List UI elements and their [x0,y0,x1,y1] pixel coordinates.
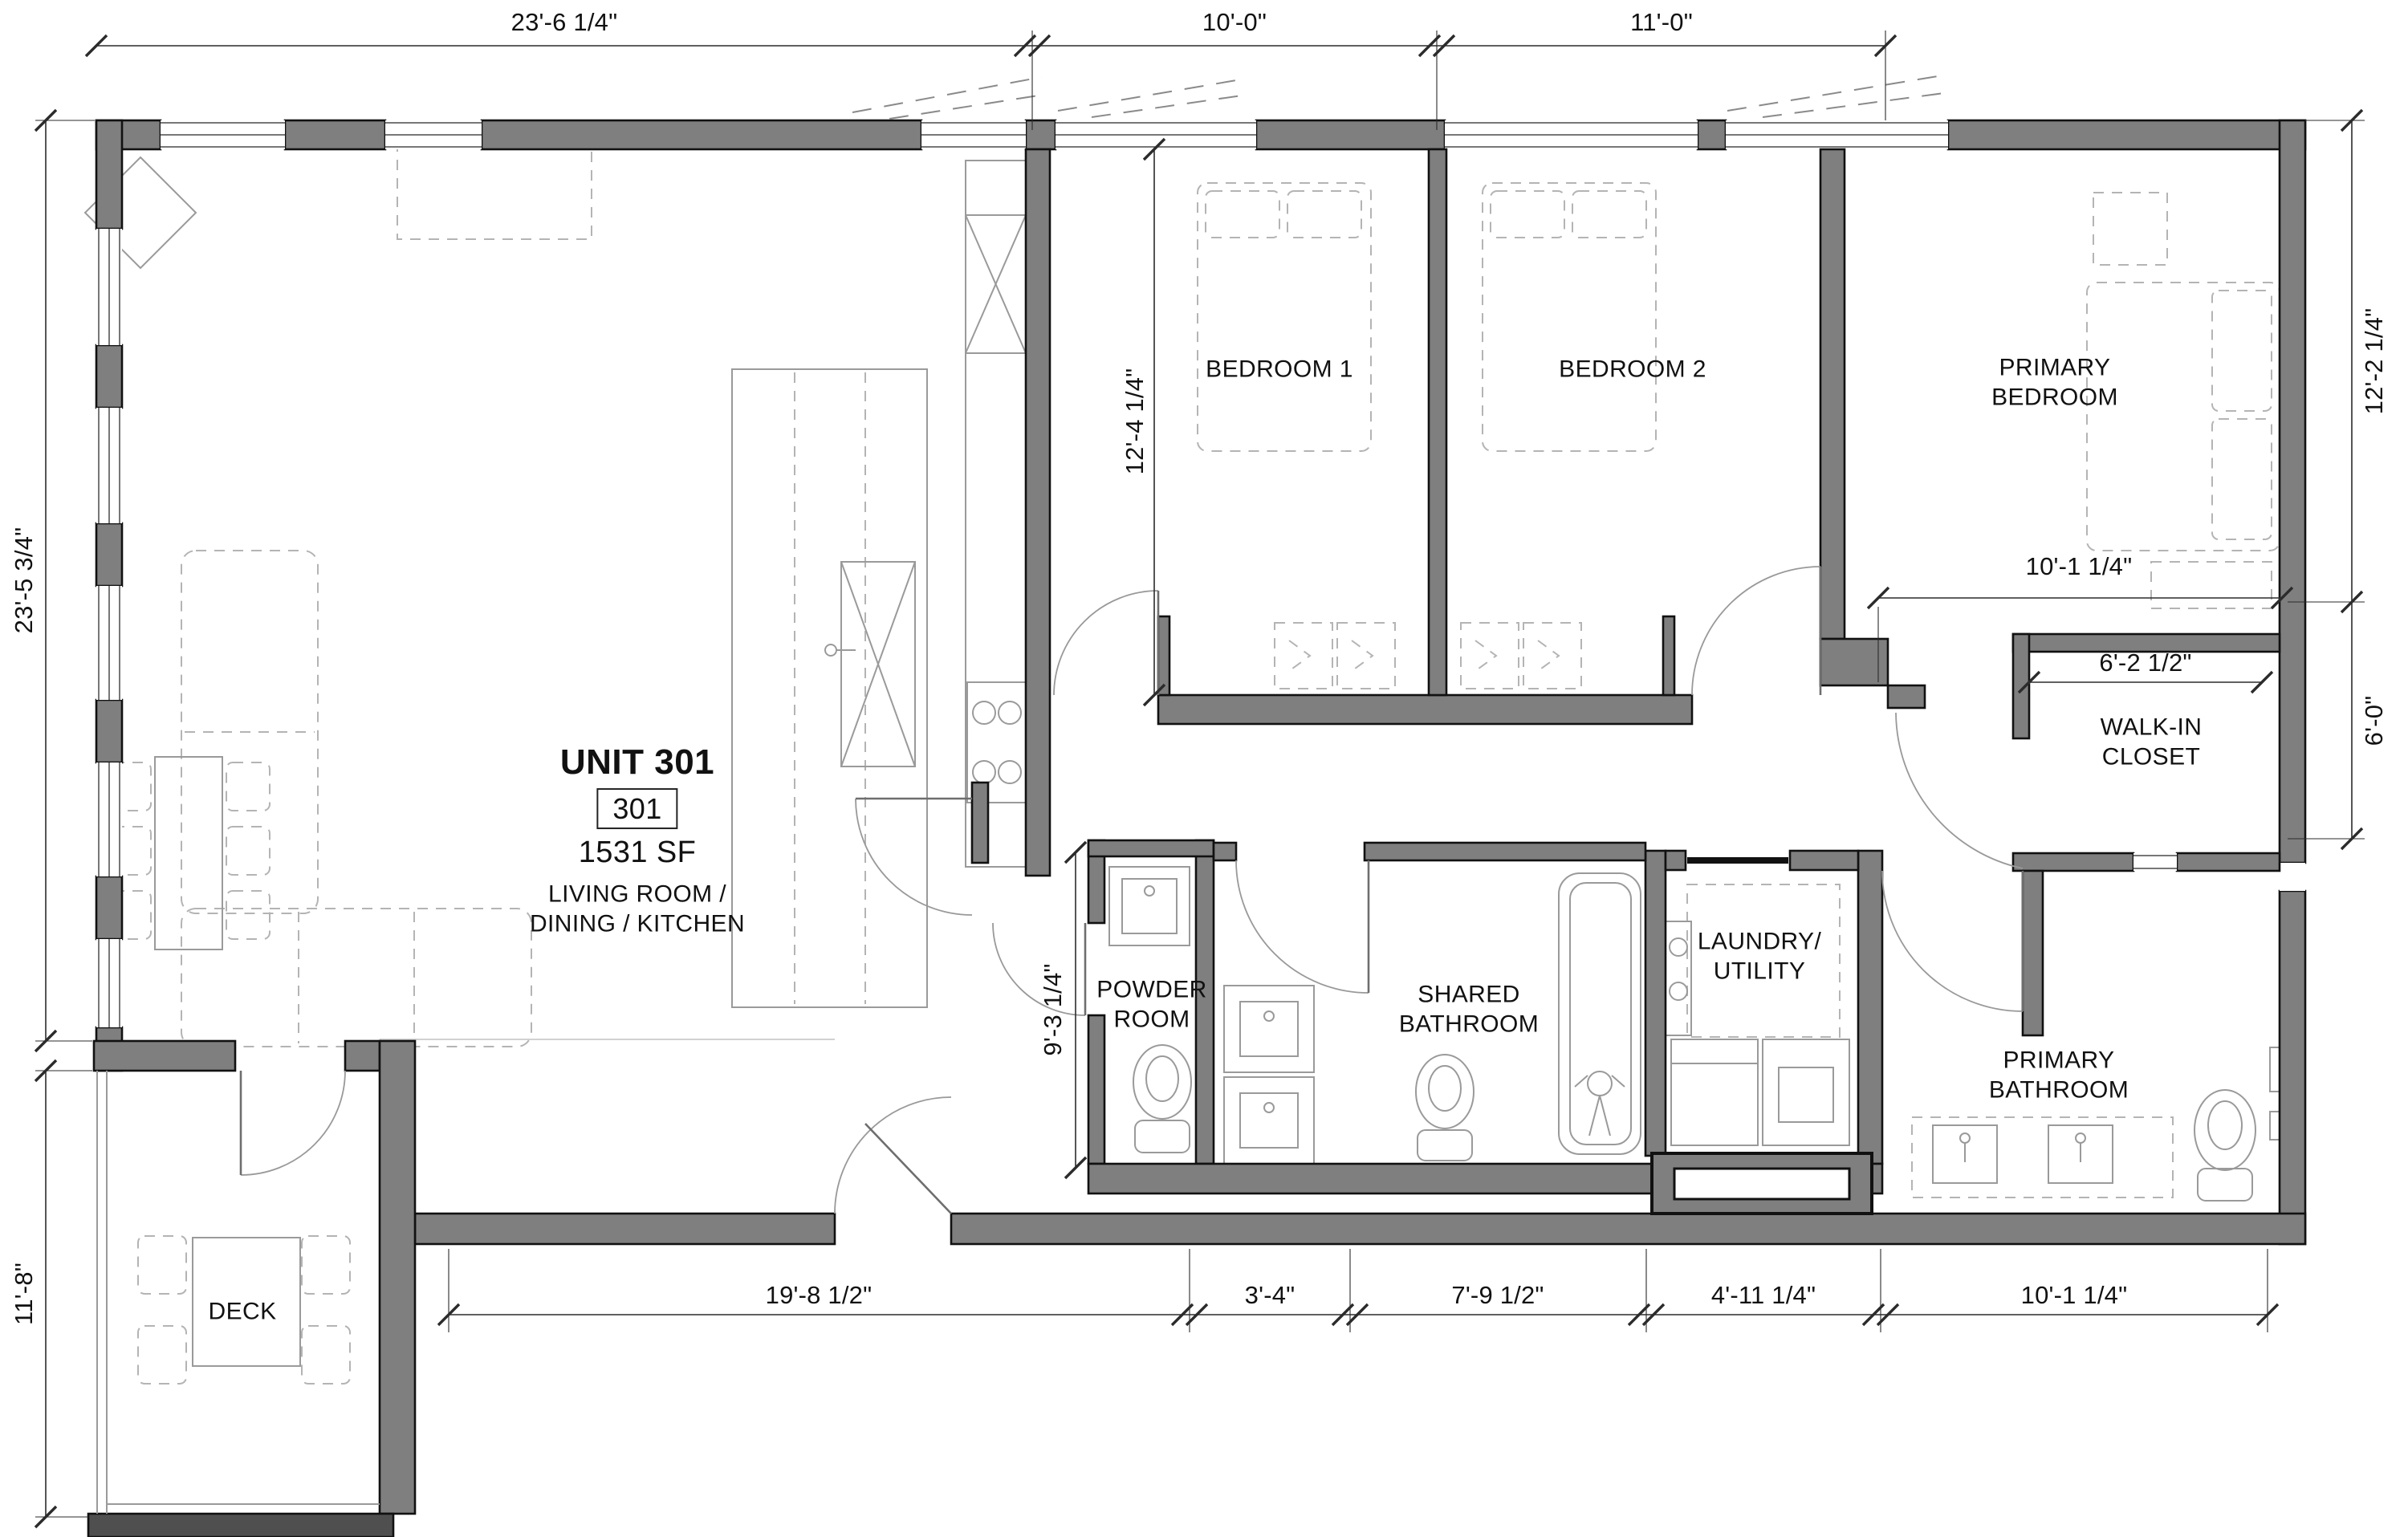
dim-bottom-4: 4'-11 1/4" [1711,1280,1816,1311]
shared-bathroom-label: SHARED BATHROOM [1399,980,1539,1039]
bedroom2-furniture [1483,183,1656,451]
dim-left-upper: 23'-5 3/4" [9,527,39,634]
kitchen-fixtures [732,161,1026,1007]
dim-top-2: 10'-0" [1202,7,1267,38]
walk-in-closet-label: WALK-IN CLOSET [2101,713,2203,771]
dim-top-3: 11'-0" [1630,7,1693,38]
dim-right-upper: 12'-2 1/4" [2359,308,2390,415]
dim-closet-width: 6'-2 1/2" [2099,648,2191,678]
dim-bottom-5: 10'-1 1/4" [2021,1280,2128,1311]
dim-primary-width: 10'-1 1/4" [2026,551,2133,582]
unit-number-box: 301 [596,791,677,827]
bedroom1-label: BEDROOM 1 [1206,356,1353,385]
bedroom1-furniture [1198,183,1371,451]
powder-room-label: POWDER ROOM [1096,975,1206,1034]
primary-bathroom-label: PRIMARY BATHROOM [1989,1046,2129,1104]
dim-bottom-2: 3'-4" [1245,1280,1296,1311]
unit-area: 1531 SF [579,834,696,871]
floor-plan: UNIT 301 301 1531 SF LIVING ROOM / DININ… [0,0,2408,1537]
dim-right-lower: 6'-0" [2359,696,2390,746]
deck-label: DECK [209,1298,277,1328]
canopy-dashes [852,75,1944,119]
dim-bottom-1: 19'-8 1/2" [766,1280,872,1311]
dim-left-lower: 11'-8" [9,1263,39,1325]
dim-top-1: 23'-6 1/4" [511,7,618,38]
unit-title: UNIT 301 [560,741,714,784]
living-room-label: LIVING ROOM / DINING / KITCHEN [530,880,745,938]
bedroom2-label: BEDROOM 2 [1559,356,1706,385]
dim-bottom-3: 7'-9 1/2" [1451,1280,1544,1311]
dim-bedroom-depth: 12'-4 1/4" [1120,368,1150,475]
living-room-furniture [85,143,592,1047]
dim-bath-depth: 9'-3 1/4" [1038,963,1068,1055]
deck-railing [97,1071,380,1514]
primary-bedroom-label: PRIMARY BEDROOM [1991,353,2118,412]
unit-number: 301 [596,788,677,829]
doors [241,567,2023,1214]
laundry-label: LAUNDRY/ UTILITY [1698,927,1821,986]
laundry-fixtures [1666,884,1849,1145]
